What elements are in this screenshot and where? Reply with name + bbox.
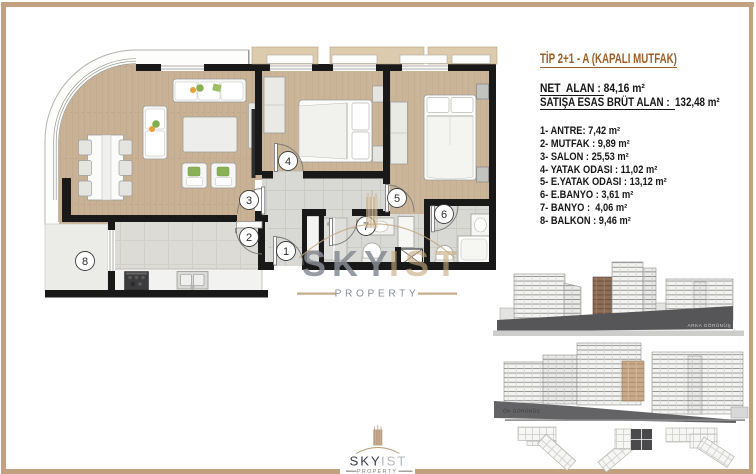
svg-text:6: 6 [441, 209, 447, 221]
svg-text:8: 8 [82, 256, 88, 268]
svg-text:IST: IST [381, 453, 407, 468]
svg-text:2: 2 [246, 232, 252, 244]
svg-text:SKY: SKY [302, 243, 394, 284]
svg-text:ÖN GÖRÜNÜŞ: ÖN GÖRÜNÜŞ [503, 408, 540, 415]
svg-text:PROPERTY: PROPERTY [357, 469, 397, 474]
svg-text:5: 5 [394, 193, 400, 205]
svg-text:1: 1 [283, 246, 289, 258]
svg-text:3: 3 [246, 195, 252, 207]
svg-text:ARKA GÖRÜNÜŞ: ARKA GÖRÜNÜŞ [688, 322, 731, 329]
svg-text:IST: IST [389, 243, 463, 284]
svg-text:SKY: SKY [350, 453, 382, 468]
svg-text:PROPERTY: PROPERTY [335, 289, 420, 300]
svg-text:4: 4 [285, 156, 291, 168]
